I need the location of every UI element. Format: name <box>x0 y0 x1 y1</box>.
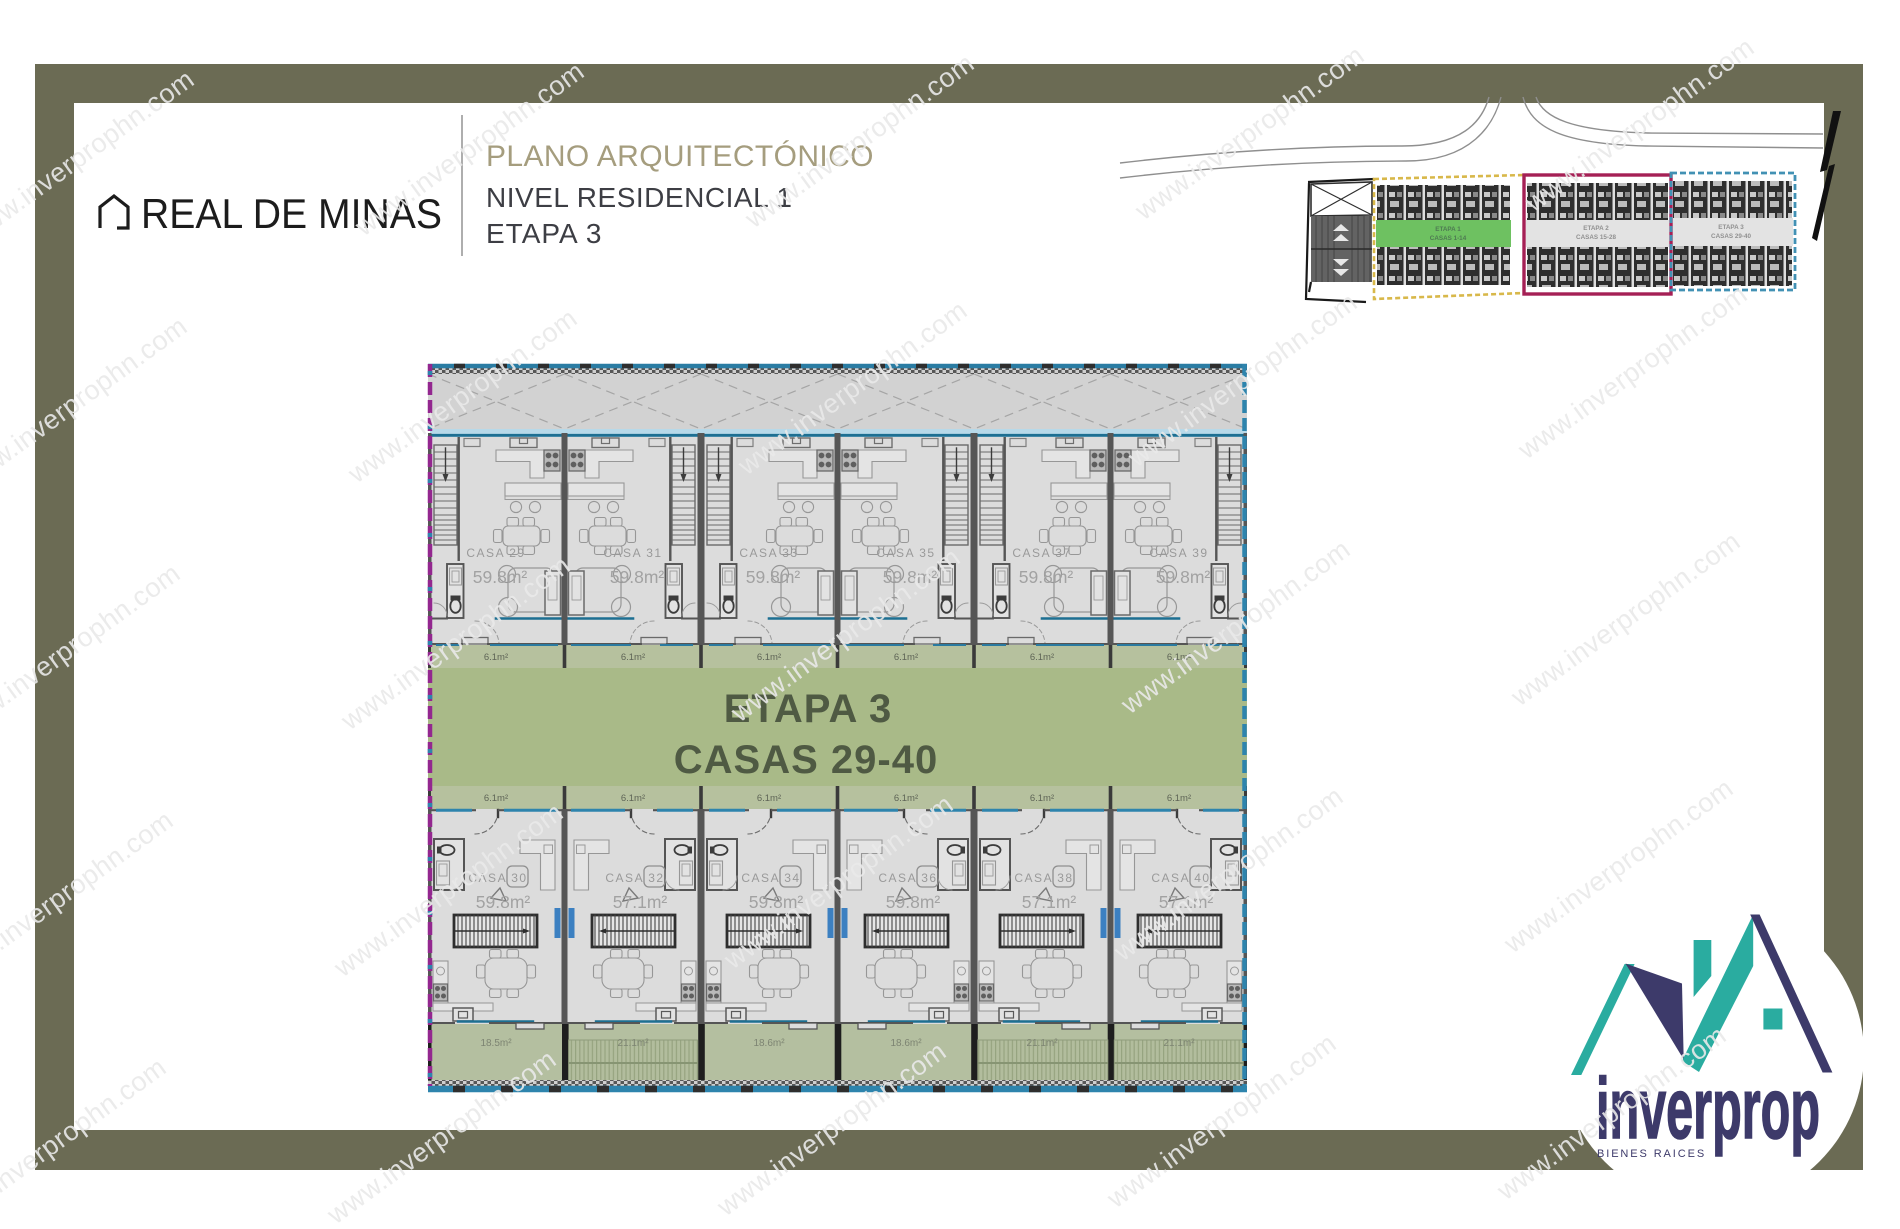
svg-text:CASA 32: CASA 32 <box>605 871 664 885</box>
svg-text:CASAS 1-14: CASAS 1-14 <box>1430 235 1467 242</box>
svg-text:6.1m²: 6.1m² <box>484 793 508 804</box>
svg-text:CASA 36: CASA 36 <box>878 871 937 885</box>
svg-text:CASA 29: CASA 29 <box>466 546 525 560</box>
svg-text:59.8m²: 59.8m² <box>746 567 801 587</box>
svg-text:6.1m²: 6.1m² <box>757 793 781 804</box>
svg-text:6.1m²: 6.1m² <box>757 652 781 663</box>
svg-text:59.8m²: 59.8m² <box>610 567 665 587</box>
svg-text:6.1m²: 6.1m² <box>621 793 645 804</box>
svg-text:6.1m²: 6.1m² <box>1167 793 1191 804</box>
svg-text:18.5m²: 18.5m² <box>480 1038 512 1049</box>
svg-text:CASA 39: CASA 39 <box>1149 546 1208 560</box>
svg-text:21.1m²: 21.1m² <box>1026 1038 1058 1049</box>
svg-text:6.1m²: 6.1m² <box>484 652 508 663</box>
svg-text:CASA 31: CASA 31 <box>603 546 662 560</box>
svg-text:CASAS 29-40: CASAS 29-40 <box>1711 233 1751 240</box>
svg-text:CASA 34: CASA 34 <box>741 871 800 885</box>
svg-text:6.1m²: 6.1m² <box>621 652 645 663</box>
svg-text:CASA 33: CASA 33 <box>739 546 798 560</box>
svg-text:6.1m²: 6.1m² <box>894 652 918 663</box>
svg-text:CASAS 15-28: CASAS 15-28 <box>1576 234 1616 241</box>
svg-text:59.8m²: 59.8m² <box>886 892 941 912</box>
svg-text:BIENES RAICES: BIENES RAICES <box>1597 1148 1706 1160</box>
svg-text:59.8m²: 59.8m² <box>1019 567 1074 587</box>
svg-text:6.1m²: 6.1m² <box>1030 652 1054 663</box>
svg-text:ETAPA 1: ETAPA 1 <box>1435 226 1461 233</box>
svg-text:CASA 37: CASA 37 <box>1012 546 1071 560</box>
svg-text:CASA 38: CASA 38 <box>1014 871 1073 885</box>
svg-text:ETAPA 3: ETAPA 3 <box>486 218 602 249</box>
svg-text:ETAPA 3: ETAPA 3 <box>1718 224 1744 231</box>
svg-text:CASAS 29-40: CASAS 29-40 <box>674 738 938 782</box>
svg-text:21.1m²: 21.1m² <box>1163 1038 1195 1049</box>
svg-text:21.1m²: 21.1m² <box>617 1038 649 1049</box>
svg-text:18.6m²: 18.6m² <box>753 1038 785 1049</box>
svg-text:6.1m²: 6.1m² <box>894 793 918 804</box>
svg-text:57.1m²: 57.1m² <box>1022 892 1077 912</box>
svg-text:59.8m²: 59.8m² <box>1156 567 1211 587</box>
svg-text:59.8m²: 59.8m² <box>476 892 531 912</box>
svg-text:6.1m²: 6.1m² <box>1030 793 1054 804</box>
svg-text:ETAPA 2: ETAPA 2 <box>1583 225 1609 232</box>
svg-text:57.1m²: 57.1m² <box>613 892 668 912</box>
